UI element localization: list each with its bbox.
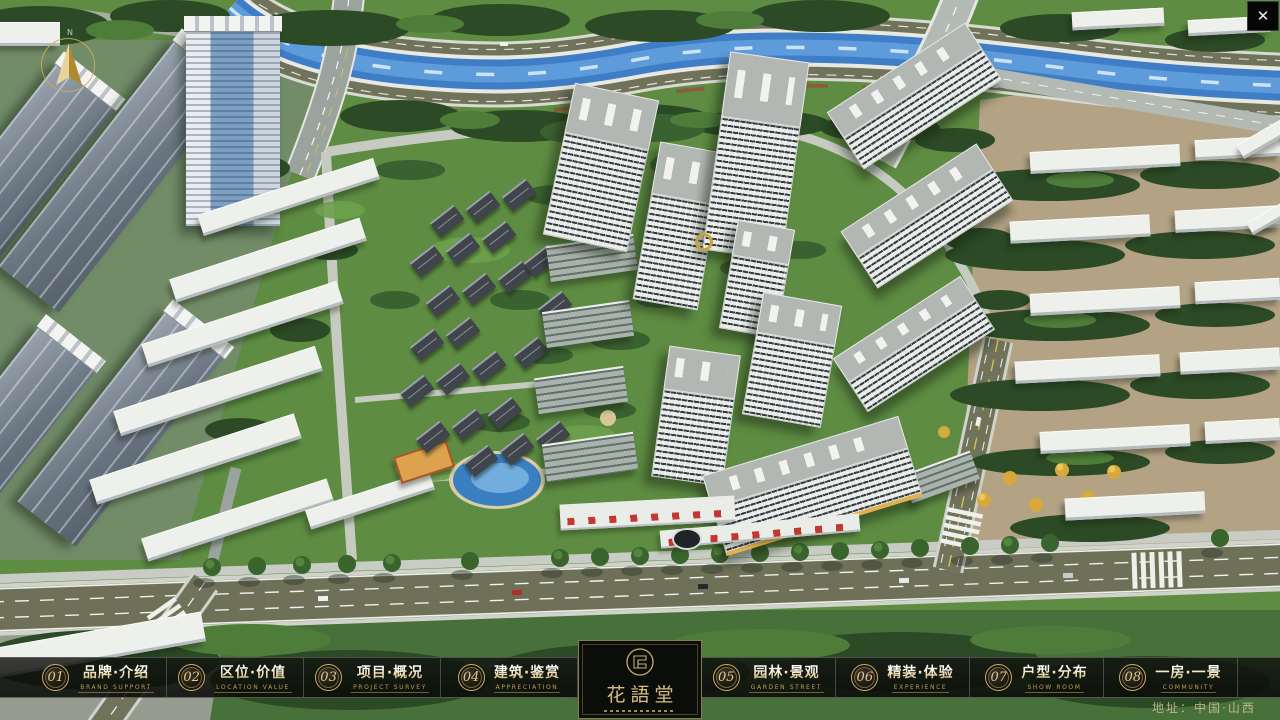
nav-label-zh: 园林·景观 (753, 662, 819, 682)
nav-label-zh: 户型·分布 (1021, 662, 1087, 682)
nav-label-zh: 建筑·鉴赏 (494, 662, 560, 682)
close-button[interactable]: ✕ (1247, 1, 1279, 31)
nav-label-en: LOCATION VALUE (214, 684, 292, 693)
brand-title: 花語堂 (606, 680, 678, 707)
nav-label-zh: 精装·体验 (887, 662, 953, 682)
nav-label-en: SHOW ROOM (1025, 684, 1083, 693)
nav-badge: 05 (713, 664, 740, 691)
landscape-feature (695, 233, 713, 251)
nav-item-project-survey[interactable]: 03 项目·概况PROJECT SURVEY (304, 658, 441, 697)
nav-badge: 07 (985, 664, 1012, 691)
offsite-slab (1204, 418, 1280, 444)
nav-label-zh: 项目·概况 (357, 662, 423, 682)
nav-label-en: EXPERIENCE (892, 684, 950, 693)
north-arrow-icon (52, 41, 86, 87)
address-watermark: 地址：中国·山西 (1152, 699, 1256, 716)
nav-badge: 02 (178, 664, 205, 691)
nav-item-interior-experience[interactable]: 06 精装·体验EXPERIENCE (836, 658, 970, 697)
nav-label-en: PROJECT SURVEY (351, 684, 429, 693)
nav-label-en: BRAND SUPPORT (78, 684, 154, 693)
entrance-plaza (672, 528, 702, 550)
nav-item-unit-layout[interactable]: 07 户型·分布SHOW ROOM (970, 658, 1104, 697)
nav-badge: 03 (315, 664, 342, 691)
close-icon: ✕ (1257, 7, 1270, 25)
nav-item-brand-intro[interactable]: 01 品牌·介绍BRAND SUPPORT (30, 658, 167, 697)
nav-label-en: GARDEN STREET (749, 684, 824, 693)
app-window: N ✕ 01 品牌·介绍BRAND SUPPORT 02 区位·价值LOCATI… (0, 0, 1280, 720)
nav-item-architecture[interactable]: 04 建筑·鉴赏APPRECIATION (441, 658, 578, 697)
nav-badge: 01 (42, 664, 69, 691)
offsite-slab (1194, 278, 1280, 304)
masterplan-viewport[interactable]: N (0, 0, 1280, 720)
nav-label-zh: 品牌·介绍 (83, 662, 149, 682)
nav-label-en: APPRECIATION (494, 684, 561, 693)
nav-item-garden-landscape[interactable]: 05 园林·景观GARDEN STREET (702, 658, 836, 697)
nav-label-en: COMMUNITY (1161, 684, 1217, 693)
brand-tagline-line (604, 710, 676, 712)
nav-badge: 04 (458, 664, 485, 691)
nav-item-location-value[interactable]: 02 区位·价值LOCATION VALUE (167, 658, 304, 697)
nav-item-room-view[interactable]: 08 一房·一景COMMUNITY (1104, 658, 1238, 697)
nav-badge: 06 (851, 664, 878, 691)
nav-label-zh: 一房·一景 (1155, 662, 1221, 682)
nav-badge: 08 (1119, 664, 1146, 691)
compass-north-label: N (67, 28, 73, 37)
brand-logo-panel: 花語堂 (578, 640, 702, 719)
nav-group-right: 05 园林·景观GARDEN STREET 06 精装·体验EXPERIENCE… (702, 658, 1238, 697)
seal-icon (625, 647, 655, 677)
compass[interactable]: N (38, 28, 102, 96)
nav-label-zh: 区位·价值 (220, 662, 286, 682)
nav-group-left: 01 品牌·介绍BRAND SUPPORT 02 区位·价值LOCATION V… (30, 658, 578, 697)
